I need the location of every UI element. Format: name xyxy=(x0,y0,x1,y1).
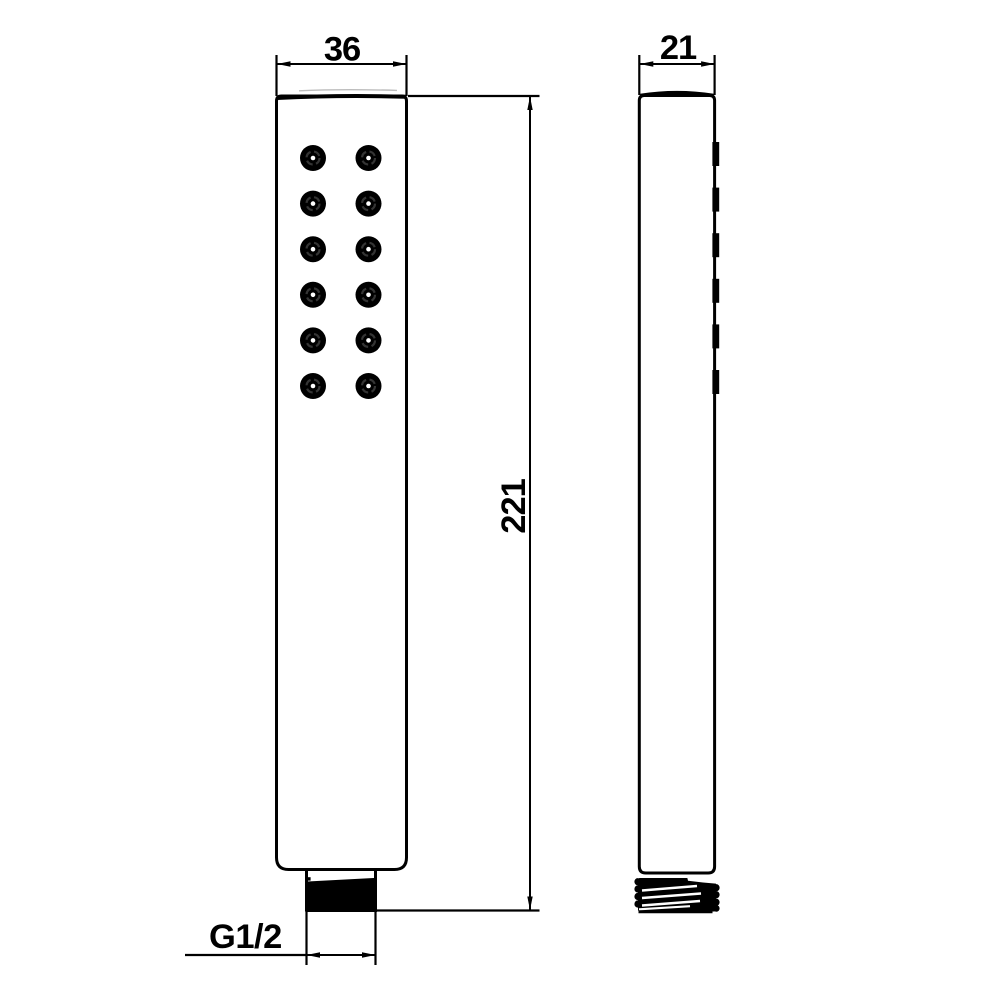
svg-text:221: 221 xyxy=(495,478,533,533)
svg-text:21: 21 xyxy=(660,29,697,67)
svg-text:G1/2: G1/2 xyxy=(209,918,282,956)
svg-text:36: 36 xyxy=(324,31,360,69)
